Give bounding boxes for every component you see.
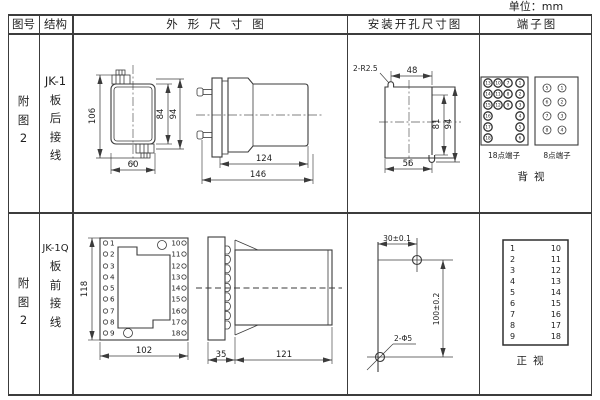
header-terminal-diagram: 端子图 xyxy=(479,15,593,33)
front-terminals-left: 1 2 3 4 5 6 7 8 9 xyxy=(103,239,115,338)
structure-line: 线 xyxy=(50,150,62,162)
dim-height-94: 94 xyxy=(169,109,179,120)
terminal-number: 8 xyxy=(110,318,115,327)
figure-char: 附 xyxy=(18,96,30,108)
terminal-number: 10 xyxy=(551,244,561,253)
figure-char: 2 xyxy=(20,133,27,145)
datasheet-page: 单位：mm 图号 结构 外形尺寸图 安装开孔尺寸图 端子图 附 图 2 JK-1… xyxy=(0,0,600,400)
terminal-number: 16 xyxy=(485,114,491,120)
terminal-number: 15 xyxy=(485,103,491,109)
jk1-terminal-diagram-rear: 13 10 7 1 14 11 8 2 15 12 9 3 16 4 17 5 … xyxy=(480,62,595,186)
terminal-number: 6 xyxy=(519,136,522,142)
dim-width-56: 56 xyxy=(403,159,414,169)
terminal-number: 17 xyxy=(485,125,491,131)
terminal-number: 12 xyxy=(495,103,501,109)
terminal-18-circles: 13 10 7 1 14 11 8 2 15 12 9 3 16 4 17 5 … xyxy=(484,79,524,142)
terminal-number: 3 xyxy=(519,103,522,109)
header-figure-no: 图号 xyxy=(8,15,39,33)
terminal-number: 7 xyxy=(510,310,515,319)
row2-figure-no: 附 图 2 xyxy=(8,278,39,388)
terminal-number: 16 xyxy=(171,307,181,316)
terminal-number: 11 xyxy=(495,92,501,98)
terminal-number: 17 xyxy=(171,318,180,327)
terminal-number: 14 xyxy=(485,92,491,98)
structure-line: 线 xyxy=(50,317,62,329)
terminal-number: 4 xyxy=(510,277,515,286)
row1-figure-no: 附 图 2 xyxy=(8,96,39,206)
terminal-number: 13 xyxy=(551,277,561,286)
terminal-number: 7 xyxy=(507,81,510,87)
terminal-number: 9 xyxy=(507,103,510,109)
hole-diameter-label: 2-Φ5 xyxy=(394,334,412,343)
grid-line xyxy=(72,14,74,396)
dim-height-81: 81 xyxy=(432,119,442,130)
rear-view-label: 背视 xyxy=(518,170,551,183)
terminal-number: 1 xyxy=(510,244,515,253)
terminal-number: 13 xyxy=(171,273,180,282)
dim-depth-146: 146 xyxy=(250,170,266,180)
terminal-number: 6 xyxy=(110,295,115,304)
terminal-number: 4 xyxy=(110,273,115,282)
terminal-8-circles: 5 1 6 2 7 3 8 4 xyxy=(543,84,566,134)
terminal-number: 10 xyxy=(495,81,501,87)
terminal-number: 18 xyxy=(551,332,561,341)
figure-char: 2 xyxy=(20,315,27,327)
header-structure: 结构 xyxy=(39,15,72,33)
unit-label: 单位：mm xyxy=(488,0,584,14)
dim-hole-spacing-30: 30±0.1 xyxy=(383,234,411,243)
terminal-number: 1 xyxy=(110,239,115,248)
terminal-number: 4 xyxy=(561,128,564,134)
terminal-number: 6 xyxy=(510,299,515,308)
dim-width-48: 48 xyxy=(407,66,418,76)
jk1-outline-front-view: 106 84 94 60 xyxy=(88,58,210,198)
terminal-number: 2 xyxy=(519,92,522,98)
dim-depth-35: 35 xyxy=(216,350,227,360)
jk1q-outline-side-view: 35 121 xyxy=(196,232,348,382)
structure-line: 接 xyxy=(50,298,62,310)
grid-line xyxy=(8,394,592,396)
figure-char: 图 xyxy=(18,115,30,127)
front-view-label: 正视 xyxy=(517,354,550,367)
terminal-number: 5 xyxy=(110,284,115,293)
terminal-number: 12 xyxy=(171,262,180,271)
mounting-hole xyxy=(158,241,167,250)
mounting-hole xyxy=(124,329,133,338)
terminal-number: 3 xyxy=(110,262,115,271)
jk1q-install-holes: 30±0.1 100±0.2 2-Φ5 xyxy=(352,234,478,386)
terminal-number: 2 xyxy=(561,100,564,106)
terminal-number: 15 xyxy=(551,299,561,308)
terminal-number: 4 xyxy=(519,114,522,120)
terminal-number: 3 xyxy=(561,114,564,120)
terminal-number: 10 xyxy=(171,239,181,248)
front-terminals-right: 10 11 12 13 14 15 16 17 18 xyxy=(171,239,186,338)
terminal-number: 11 xyxy=(171,250,180,259)
structure-line: 板 xyxy=(50,95,62,107)
dim-height-94: 94 xyxy=(444,119,454,130)
terminal-list-left: 1 2 3 4 5 6 7 8 9 xyxy=(510,244,515,341)
dim-depth-124: 124 xyxy=(256,154,272,164)
mounting-screw xyxy=(197,88,212,96)
structure-line: JK-1Q xyxy=(42,244,68,254)
terminal-number: 18 xyxy=(171,329,181,338)
terminal-number: 8 xyxy=(546,128,549,134)
jk1q-terminal-diagram-front: 1 2 3 4 5 6 7 8 9 10 11 12 13 14 15 16 1… xyxy=(480,237,595,377)
terminal-number: 14 xyxy=(171,284,181,293)
terminal-number: 16 xyxy=(551,310,561,319)
terminal-number: 13 xyxy=(485,81,491,87)
mounting-screw xyxy=(197,131,212,139)
terminal-number: 2 xyxy=(510,255,515,264)
row2-structure: JK-1Q 板 前 接 线 xyxy=(39,244,72,374)
grid-line xyxy=(8,33,592,35)
figure-char: 图 xyxy=(18,297,30,309)
dim-width-102: 102 xyxy=(136,346,152,356)
dim-notch-radius: 2-R2.5 xyxy=(353,64,378,73)
dim-height-84: 84 xyxy=(156,109,166,120)
structure-line: 板 xyxy=(50,261,62,273)
terminal-block-8 xyxy=(535,77,578,145)
top-terminal-block xyxy=(112,70,130,84)
terminal-number: 12 xyxy=(551,266,561,275)
terminal-number: 5 xyxy=(519,125,522,131)
dim-height-106: 106 xyxy=(88,108,98,124)
structure-line: 后 xyxy=(50,113,62,125)
terminal-screw-column xyxy=(225,246,230,329)
terminal-list-right: 10 11 12 13 14 15 16 17 18 xyxy=(551,244,561,341)
dim-depth-121: 121 xyxy=(276,350,292,360)
terminal-number: 2 xyxy=(110,250,115,259)
jk1-install-cutout: 2-R2.5 48 81 94 56 xyxy=(352,58,478,200)
terminal-number: 3 xyxy=(510,266,515,275)
terminal-number: 17 xyxy=(551,321,561,330)
header-outline-dimensions: 外形尺寸图 xyxy=(73,15,357,33)
terminal-8-label: 8点端子 xyxy=(543,150,571,160)
dim-width-60: 60 xyxy=(128,160,139,170)
terminal-number: 9 xyxy=(110,329,115,338)
terminal-number: 18 xyxy=(485,136,491,142)
grid-line xyxy=(8,212,592,214)
dim-hole-spacing-100: 100±0.2 xyxy=(432,293,441,326)
figure-char: 附 xyxy=(18,278,30,290)
terminal-number: 7 xyxy=(110,307,115,316)
terminal-number: 7 xyxy=(546,114,549,120)
terminal-number: 15 xyxy=(171,295,180,304)
row1-structure: JK-1 板 后 接 线 xyxy=(39,76,72,206)
header-install-cutout: 安装开孔尺寸图 xyxy=(347,15,481,33)
jk1-outline-side-view: 124 146 xyxy=(196,58,348,198)
terminal-number: 5 xyxy=(510,288,515,297)
terminal-number: 5 xyxy=(546,86,549,92)
terminal-number: 6 xyxy=(546,100,549,106)
dim-height-118: 118 xyxy=(80,281,90,297)
terminal-number: 9 xyxy=(510,332,515,341)
structure-line: 前 xyxy=(50,280,62,292)
terminal-18-label: 18点端子 xyxy=(488,150,521,160)
bottom-terminal-block xyxy=(136,144,154,158)
jk1q-outline-front-view: 1 2 3 4 5 6 7 8 9 10 11 12 13 14 15 16 1… xyxy=(80,230,210,378)
structure-line: JK-1 xyxy=(45,76,66,88)
terminal-number: 8 xyxy=(507,92,510,98)
terminal-number: 8 xyxy=(510,321,515,330)
terminal-number: 11 xyxy=(551,255,561,264)
terminal-number: 1 xyxy=(519,81,522,87)
structure-line: 接 xyxy=(50,132,62,144)
terminal-number: 1 xyxy=(561,86,564,92)
terminal-number: 14 xyxy=(551,288,561,297)
